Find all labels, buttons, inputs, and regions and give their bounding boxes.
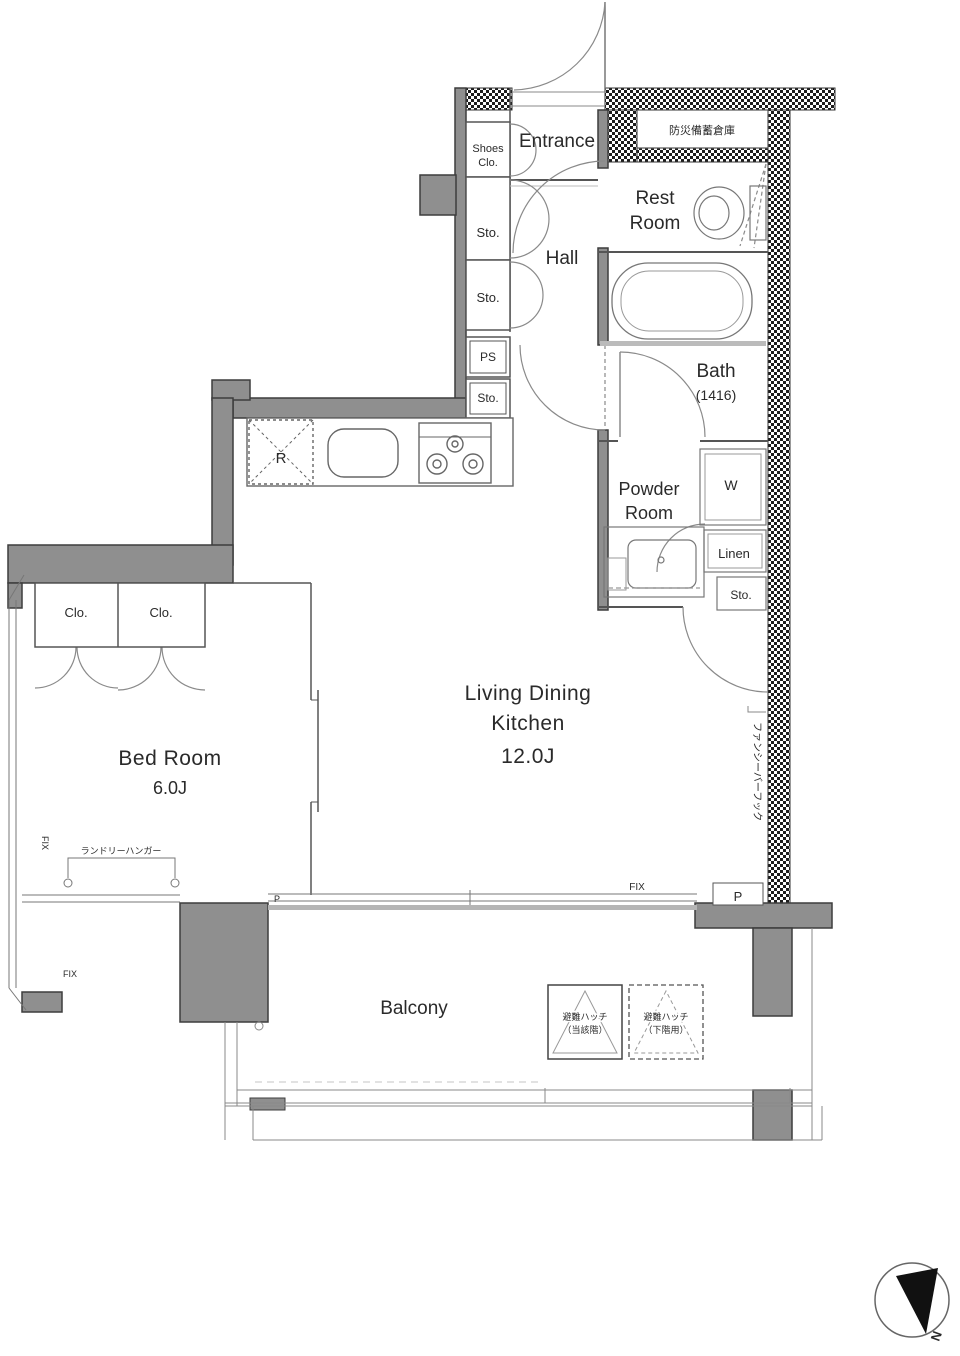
hatched-wall-top-left <box>465 88 512 110</box>
wall-bedroom-corner-foot <box>22 992 62 1012</box>
toilet-bowl-inner <box>699 196 729 230</box>
restroom-out-door-dash-1 <box>740 164 766 246</box>
railing-block-right <box>753 1090 792 1140</box>
label-laundry-hanger: ランドリーハンガー <box>81 846 162 856</box>
escape-hatch-solid-box <box>548 985 622 1059</box>
label-shoes-1: Shoes <box>472 143 504 155</box>
vanity-sink <box>628 540 696 588</box>
ldk-window-sill <box>268 905 697 910</box>
label-hatch-solid-2: （当該階） <box>562 1024 607 1035</box>
bathtub-outer <box>612 263 752 339</box>
pillar-balcony-right-stem <box>753 928 792 1016</box>
label-entrance: Entrance <box>519 131 595 152</box>
wall-ldk-west-cap <box>212 380 250 400</box>
label-fix-side: FIX <box>40 836 50 850</box>
closet1-door-left-arc <box>35 647 76 688</box>
restroom-door-arc <box>513 161 605 253</box>
closet1-door-right-arc <box>77 647 118 688</box>
floor-plan-page: Entrance Shoes Clo. Sto. Sto. Hall Rest … <box>0 0 960 1356</box>
label-disaster-storage: 防災備蓄倉庫 <box>669 123 735 137</box>
label-fancy-bar-hook: ファンシーバーフック <box>751 722 763 821</box>
wall-bedroom-top <box>8 545 233 583</box>
north-arrow <box>875 1263 949 1337</box>
bathtub-fixture <box>600 263 766 346</box>
bath-door-arc <box>620 352 705 437</box>
pillar-balcony-left <box>180 903 268 1022</box>
laundry-hanger-symbol <box>64 858 179 887</box>
bedroom-closets <box>35 583 205 647</box>
powder-fixtures <box>604 449 766 610</box>
floor-plan-drawing: Entrance Shoes Clo. Sto. Sto. Hall Rest … <box>0 0 960 1356</box>
sto-upper-door-arc <box>510 180 549 258</box>
label-ldk-1: Living Dining <box>465 682 592 705</box>
powder-door-arc <box>657 524 705 572</box>
label-powder-2: Room <box>625 503 673 523</box>
laundry-hanger-end-right <box>171 879 179 887</box>
label-bedroom-2: 6.0J <box>153 778 187 798</box>
wall-notch-upper-left <box>420 175 456 215</box>
hatched-wall-top-right <box>605 88 835 110</box>
railing-block-left <box>250 1098 285 1110</box>
wall-sanitary-west-b <box>598 248 608 345</box>
label-p-pipe: P <box>734 889 743 904</box>
kitchen-fixtures <box>247 418 513 486</box>
balcony-railing <box>225 928 822 1140</box>
laundry-hanger-bracket <box>68 858 175 878</box>
label-hatch-dashed-1: 避難ハッチ <box>643 1011 688 1022</box>
north-arrow-needle <box>896 1268 938 1334</box>
label-hatch-dashed-2: （下階用） <box>643 1025 688 1035</box>
label-linen: Linen <box>718 546 750 561</box>
wall-sanitary-west-a <box>598 110 608 168</box>
bathtub-inner <box>621 271 743 331</box>
label-rest-room-2: Room <box>630 213 681 234</box>
laundry-hanger-end-left <box>64 879 72 887</box>
label-ldk-2: Kitchen <box>491 712 565 735</box>
toilet-bowl <box>694 187 744 239</box>
label-sto-powder: Sto. <box>730 588 751 602</box>
south-windows <box>22 883 763 910</box>
label-bath-1: Bath <box>696 361 735 382</box>
label-ps: PS <box>480 350 496 364</box>
label-rest-room-1: Rest <box>635 188 675 209</box>
hall-ldk-door-arc <box>520 345 605 430</box>
label-sto-hall-lower: Sto. <box>476 290 499 305</box>
label-bath-2: (1416) <box>696 387 736 403</box>
label-powder-1: Powder <box>618 479 679 499</box>
hatched-wall-storage-bottom <box>637 148 768 162</box>
label-closet-right: Clo. <box>149 605 172 620</box>
closet2-door-right-arc <box>162 647 205 690</box>
label-ldk-3: 12.0J <box>501 745 555 768</box>
escape-hatch-dashed-triangle <box>634 991 698 1053</box>
vanity-cabinet <box>608 558 626 590</box>
hatched-wall-storage-left <box>605 110 637 162</box>
wall-sanitary-west-c <box>598 430 608 610</box>
escape-hatch-dashed-box <box>629 985 703 1059</box>
label-closet-left: Clo. <box>64 605 87 620</box>
hatched-wall-right <box>768 110 790 916</box>
entrance-door-arc <box>514 2 605 90</box>
escape-hatches <box>548 985 703 1059</box>
label-balcony: Balcony <box>380 998 448 1019</box>
label-washer: W <box>724 477 738 493</box>
label-hall: Hall <box>546 248 579 269</box>
balcony-drain <box>255 1022 263 1030</box>
label-north: N <box>928 1329 945 1343</box>
label-sto-hall-upper: Sto. <box>476 225 499 240</box>
wall-ldk-west <box>212 398 233 565</box>
sto-box-upper <box>466 177 510 260</box>
closet2-door-left-arc <box>118 647 161 690</box>
label-refrigerator: R <box>276 450 287 467</box>
label-shoes-2: Clo. <box>478 157 498 169</box>
fancy-bar-hook-bracket <box>748 706 766 712</box>
label-hatch-solid-1: 避難ハッチ <box>562 1011 607 1022</box>
wall-kitchen-top <box>233 398 466 418</box>
label-p-partition: P <box>274 894 280 904</box>
toilet-fixture <box>694 186 766 240</box>
wall-bedroom-left-stub <box>8 583 22 608</box>
bedroom-side-window <box>9 575 26 1010</box>
entrance-doorway <box>510 2 605 186</box>
toilet-tank <box>750 186 766 240</box>
sto-lower-door-arc <box>510 262 543 328</box>
bath-counter-ledge <box>600 341 766 346</box>
wall-hall-left <box>455 88 466 418</box>
vanity-counter <box>604 527 704 597</box>
pillar-balcony-right-cap <box>695 903 832 928</box>
closet-row <box>35 583 205 647</box>
label-sto-kitchen: Sto. <box>477 391 498 405</box>
label-fix-corner: FIX <box>63 969 77 979</box>
restroom-out-door-dash-2 <box>754 164 766 248</box>
label-bedroom-1: Bed Room <box>118 747 221 770</box>
label-fix-ldk: FIX <box>629 882 645 893</box>
ldk-powder-door-arc <box>683 607 768 692</box>
kitchen-counter <box>247 418 513 486</box>
